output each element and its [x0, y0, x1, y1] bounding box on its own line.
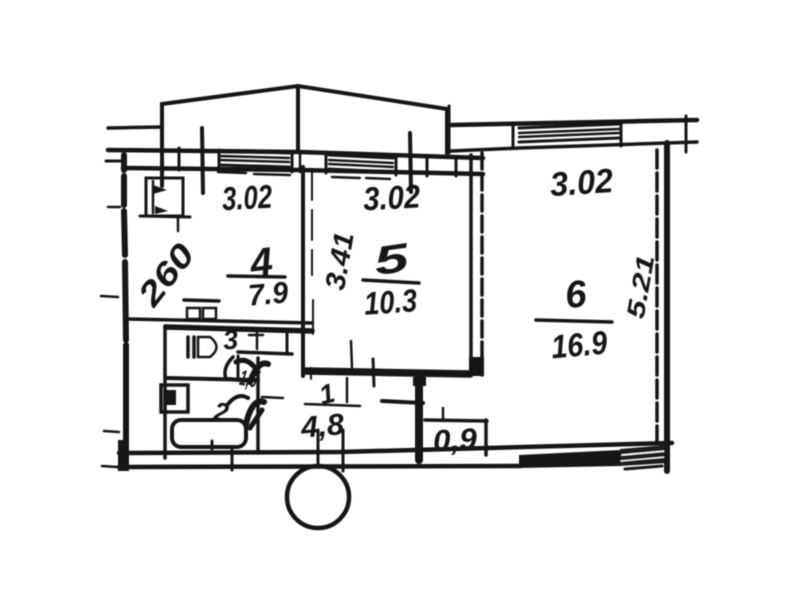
svg-text:2: 2 — [211, 396, 231, 428]
svg-text:5.21: 5.21 — [622, 253, 661, 321]
svg-text:7.9: 7.9 — [247, 276, 290, 312]
svg-text:16.9: 16.9 — [550, 324, 610, 366]
svg-text:4,8: 4,8 — [299, 408, 346, 445]
svg-text:3.02: 3.02 — [221, 178, 273, 218]
svg-text:6: 6 — [563, 273, 589, 317]
svg-text:5: 5 — [371, 236, 412, 284]
svg-text:0,9: 0,9 — [432, 423, 478, 458]
svg-text:3.02: 3.02 — [362, 177, 421, 217]
svg-text:10.3: 10.3 — [363, 282, 419, 322]
svg-text:1,6: 1,6 — [238, 365, 259, 393]
svg-text:3: 3 — [222, 324, 240, 355]
svg-text:3.41: 3.41 — [319, 230, 360, 293]
svg-text:3.02: 3.02 — [549, 162, 615, 204]
